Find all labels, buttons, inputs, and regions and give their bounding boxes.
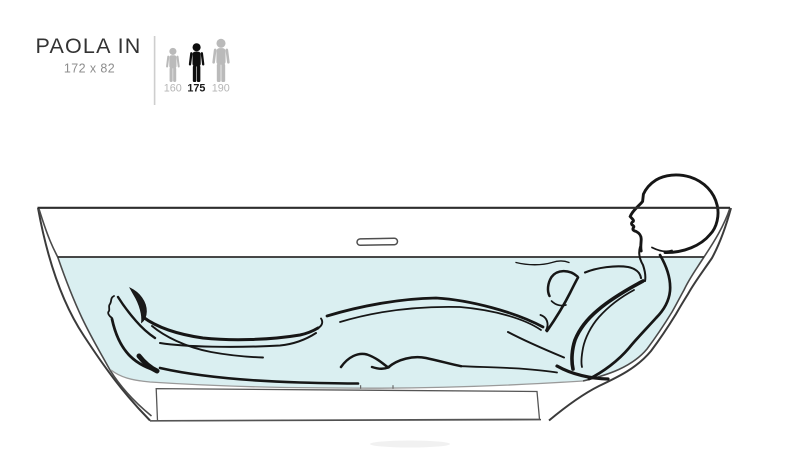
- svg-text:175: 175: [187, 83, 205, 95]
- svg-text:PAOLA IN: PAOLA IN: [36, 34, 142, 58]
- svg-text:160: 160: [164, 83, 182, 95]
- svg-text:190: 190: [212, 83, 230, 95]
- svg-text:172 x 82: 172 x 82: [64, 62, 115, 76]
